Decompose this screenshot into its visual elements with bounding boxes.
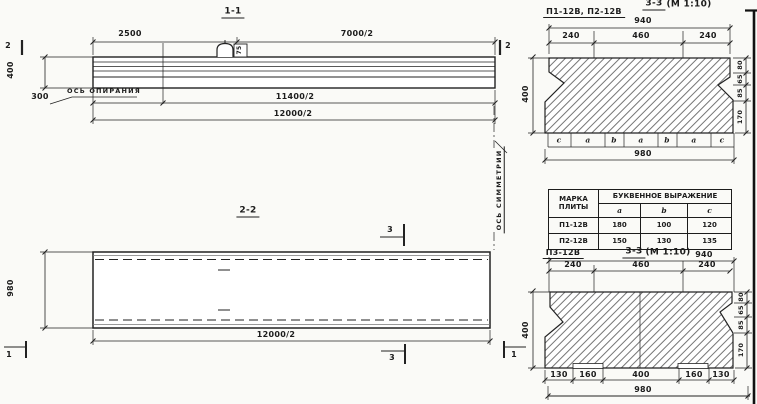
dim-label-460: 460 [632, 32, 650, 40]
dim-label-130-l: 130 [550, 371, 568, 379]
cut-label-1-left: 1 [6, 351, 12, 359]
dim-label-160-r: 160 [685, 371, 703, 379]
drawing-sheet: 1-1 2500 7000/2 2 2 400 300 ОСЬ ОПИРАНИЯ… [0, 0, 757, 404]
segment-letter-a3: a [691, 136, 696, 144]
segment-letter-a2: a [638, 136, 643, 144]
dim-label-80-b: 80 [738, 292, 745, 301]
dim-label-460-b: 460 [632, 261, 650, 269]
dim-label-980-width: 980 [7, 279, 15, 297]
cell-b: 100 [641, 218, 688, 234]
cell-c: 135 [688, 234, 732, 250]
loop-tag-label: 75 [237, 46, 243, 55]
slab-cross-section-bottom [545, 292, 733, 368]
table-subheader-c: c [688, 204, 732, 218]
dim-label-240-bl: 240 [564, 261, 582, 269]
dim-label-980-b: 980 [634, 386, 652, 394]
plate-label-p3: П3-12В [543, 249, 584, 259]
section-1-1-view [22, 37, 507, 153]
section-2-2-title: 2-2 [236, 207, 259, 218]
cell-mark: П1-12В [549, 218, 599, 234]
dim-label-12000-2-plan: 12000/2 [257, 331, 295, 339]
cut-label-3-bottom: 3 [389, 354, 395, 362]
section-3-3-top-title: 3-3 [642, 0, 665, 11]
dim-label-240-r: 240 [699, 32, 717, 40]
table-row: П1-12В 180 100 120 [549, 218, 732, 234]
dim-label-160-l: 160 [579, 371, 597, 379]
dim-label-12000-2-top: 12000/2 [274, 110, 312, 118]
table-header-expression: БУКВЕННОЕ ВЫРАЖЕНИЕ [599, 190, 732, 204]
dim-label-11400-2: 11400/2 [276, 93, 314, 101]
cut-label-3-top: 3 [387, 226, 393, 234]
dim-label-240-br: 240 [698, 261, 716, 269]
dim-label-65: 65 [737, 74, 744, 83]
segment-letter-c1: c [557, 136, 562, 144]
dim-label-400-b: 400 [632, 371, 650, 379]
dim-label-400-height: 400 [7, 61, 15, 79]
dim-label-65-b: 65 [738, 305, 745, 314]
dim-label-300: 300 [31, 93, 49, 101]
dim-label-85: 85 [737, 88, 744, 97]
cell-c: 120 [688, 218, 732, 234]
support-axis-label: ОСЬ ОПИРАНИЯ [67, 88, 141, 95]
slab-cross-section-top [545, 58, 733, 133]
segment-letter-a1: a [585, 136, 590, 144]
segment-letter-c2: c [720, 136, 725, 144]
section-2-2-view [4, 224, 526, 364]
cut-label-2-left: 2 [5, 42, 11, 50]
section-3-3-bottom-title: 3-3 [622, 248, 645, 259]
table-header-mark: МАРКА ПЛИТЫ [549, 190, 599, 218]
segment-letter-b1: b [611, 136, 617, 144]
letter-values-table: МАРКА ПЛИТЫ БУКВЕННОЕ ВЫРАЖЕНИЕ a b c П1… [548, 189, 732, 250]
section-1-1-title: 1-1 [221, 8, 244, 19]
table-subheader-b: b [641, 204, 688, 218]
dim-label-240-l: 240 [562, 32, 580, 40]
table-subheader-a: a [599, 204, 641, 218]
dim-label-7000-2: 7000/2 [341, 30, 374, 38]
bottom-recess-right [678, 364, 708, 369]
dim-label-940-bot: 940 [695, 251, 713, 259]
dim-label-170-b: 170 [738, 343, 745, 357]
dim-label-2500: 2500 [118, 30, 141, 38]
bottom-recess-left [573, 364, 603, 369]
dim-label-940-top: 940 [634, 17, 652, 25]
cut-label-1-right: 1 [511, 351, 517, 359]
section-3-3-bottom-scale: (М 1:10) [645, 249, 690, 258]
cut-label-2-right: 2 [505, 42, 511, 50]
dim-label-400-left-b: 400 [522, 321, 530, 339]
plates-label-p1-p2: П1-12В, П2-12В [543, 8, 625, 18]
cell-a: 180 [599, 218, 641, 234]
dim-label-980-bottom: 980 [634, 150, 652, 158]
slab-plan-outline [93, 252, 490, 328]
dim-label-80: 80 [737, 60, 744, 69]
dim-label-400-left: 400 [522, 85, 530, 103]
segment-letter-b2: b [664, 136, 670, 144]
section-3-3-top-scale: (М 1:10) [666, 1, 711, 10]
dim-label-170: 170 [737, 110, 744, 124]
dim-label-85-b: 85 [738, 320, 745, 329]
symmetry-axis-label: ОСЬ СИММЕТРИИ [496, 147, 505, 234]
dim-label-130-r: 130 [712, 371, 730, 379]
